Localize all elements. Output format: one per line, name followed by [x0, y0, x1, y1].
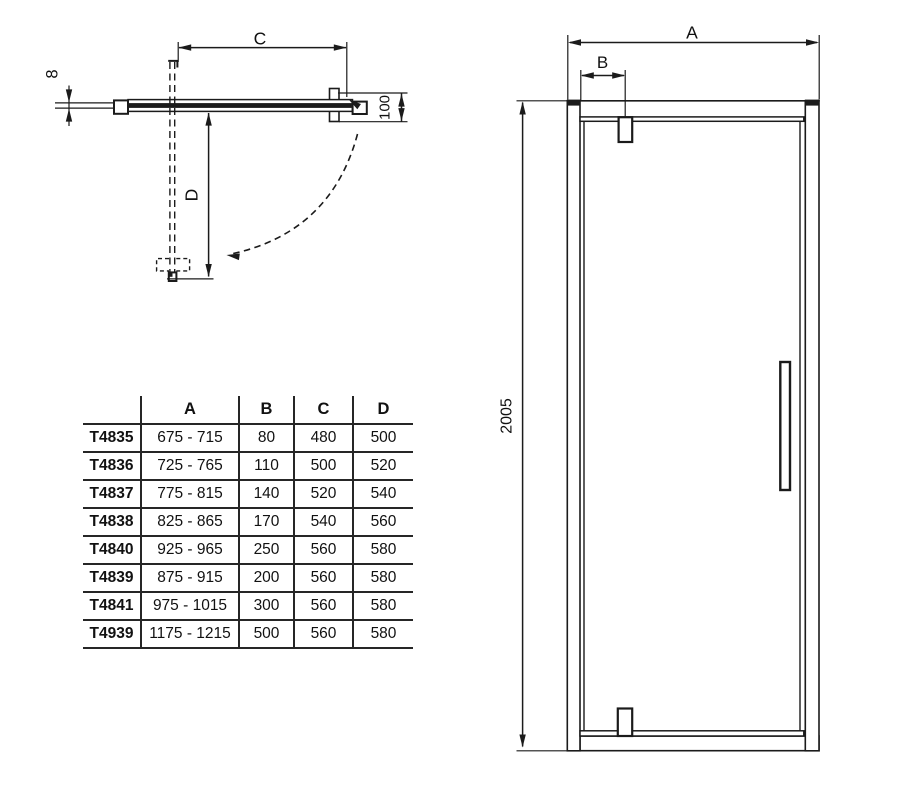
dimension-100-label: 100	[377, 95, 394, 120]
table-header-empty	[83, 396, 140, 425]
value-cell-d: 500	[352, 425, 413, 453]
model-cell: T4841	[83, 593, 140, 621]
value-cell-b: 170	[238, 509, 293, 537]
plan-view: C 8 100	[44, 29, 408, 282]
arrowhead	[519, 102, 525, 115]
wall-profile-left-top-cap	[567, 100, 581, 106]
arrowhead	[581, 72, 594, 78]
value-cell-c: 480	[293, 425, 352, 453]
plan-door-closed	[55, 89, 367, 122]
arrowhead	[398, 94, 404, 107]
value-cell-a: 1175 - 1215	[140, 621, 238, 649]
value-cell-b: 80	[238, 425, 293, 453]
swing-arc-path	[229, 134, 358, 255]
front-view: A B 2005	[499, 23, 820, 751]
value-cell-b: 110	[238, 453, 293, 481]
value-cell-b: 250	[238, 537, 293, 565]
door-handle	[780, 362, 790, 490]
value-cell-b: 500	[238, 621, 293, 649]
value-cell-a: 875 - 915	[140, 565, 238, 593]
arrowhead	[66, 109, 72, 122]
wall-profile-left-cap	[114, 100, 128, 113]
table-header-d: D	[352, 396, 413, 425]
model-cell: T4839	[83, 565, 140, 593]
size-table: A B C D T4835 675 - 715 80 480 500 T4836…	[83, 396, 413, 649]
table-header-a: A	[140, 396, 238, 425]
front-view-drawing: A B 2005	[495, 20, 840, 760]
dimension-b: B	[581, 53, 625, 118]
value-cell-c: 560	[293, 593, 352, 621]
value-cell-d: 560	[352, 509, 413, 537]
arrowhead	[568, 39, 581, 45]
top-pivot-hinge	[619, 117, 633, 142]
model-cell: T4939	[83, 621, 140, 649]
arrowhead	[806, 39, 819, 45]
model-cell: T4840	[83, 537, 140, 565]
arrowhead	[66, 89, 72, 102]
arrowhead	[205, 264, 211, 277]
value-cell-c: 560	[293, 565, 352, 593]
plan-view-drawing: C 8 100	[38, 18, 442, 290]
wall-profile-right	[805, 101, 819, 751]
dimension-8-label: 8	[44, 69, 62, 78]
arrowhead	[334, 44, 347, 50]
value-cell-b: 200	[238, 565, 293, 593]
arrowhead	[178, 44, 191, 50]
value-cell-a: 825 - 865	[140, 509, 238, 537]
door-glass-band	[129, 103, 352, 108]
value-cell-d: 580	[352, 537, 413, 565]
model-cell: T4838	[83, 509, 140, 537]
bottom-bar	[580, 736, 819, 751]
dimension-b-label: B	[597, 53, 608, 72]
dimension-d-label: D	[182, 189, 202, 202]
value-cell-a: 925 - 965	[140, 537, 238, 565]
glass-panel	[584, 117, 800, 736]
value-cell-d: 540	[352, 481, 413, 509]
plan-door-open-dashed	[157, 61, 190, 281]
wall-profile-right-top-cap	[805, 100, 820, 106]
value-cell-c: 540	[293, 509, 352, 537]
bottom-rail	[580, 731, 804, 736]
front-frame	[567, 100, 820, 751]
open-door-handle-dashed	[176, 259, 189, 271]
dimension-a-label: A	[686, 23, 698, 43]
value-cell-a: 775 - 815	[140, 481, 238, 509]
value-cell-a: 725 - 765	[140, 453, 238, 481]
table-header-c: C	[293, 396, 352, 425]
value-cell-c: 560	[293, 537, 352, 565]
value-cell-d: 580	[352, 621, 413, 649]
value-cell-d: 580	[352, 565, 413, 593]
top-rail	[580, 117, 804, 121]
value-cell-c: 500	[293, 453, 352, 481]
value-cell-b: 300	[238, 593, 293, 621]
dimension-c-label: C	[254, 29, 267, 49]
value-cell-d: 520	[352, 453, 413, 481]
model-cell: T4837	[83, 481, 140, 509]
open-door-handle-dashed	[157, 259, 169, 271]
value-cell-a: 975 - 1015	[140, 593, 238, 621]
value-cell-a: 675 - 715	[140, 425, 238, 453]
model-cell: T4836	[83, 453, 140, 481]
wall-profile-left	[567, 101, 580, 751]
dimension-d: D	[167, 113, 214, 279]
open-door-bottom-notch	[169, 273, 172, 277]
value-cell-b: 140	[238, 481, 293, 509]
value-cell-c: 520	[293, 481, 352, 509]
table-header-b: B	[238, 396, 293, 425]
technical-drawing-page: C 8 100	[0, 0, 923, 805]
arrowhead	[398, 108, 404, 121]
arrowhead	[205, 113, 211, 126]
dimension-height-label: 2005	[499, 398, 516, 434]
dimension-glass-thickness: 8	[44, 69, 73, 126]
value-cell-c: 560	[293, 621, 352, 649]
door-swing-arc	[226, 134, 357, 260]
model-cell: T4835	[83, 425, 140, 453]
arrowhead	[519, 735, 525, 748]
value-cell-d: 580	[352, 593, 413, 621]
arrowhead	[612, 72, 625, 78]
bottom-pivot-hinge	[618, 709, 632, 737]
